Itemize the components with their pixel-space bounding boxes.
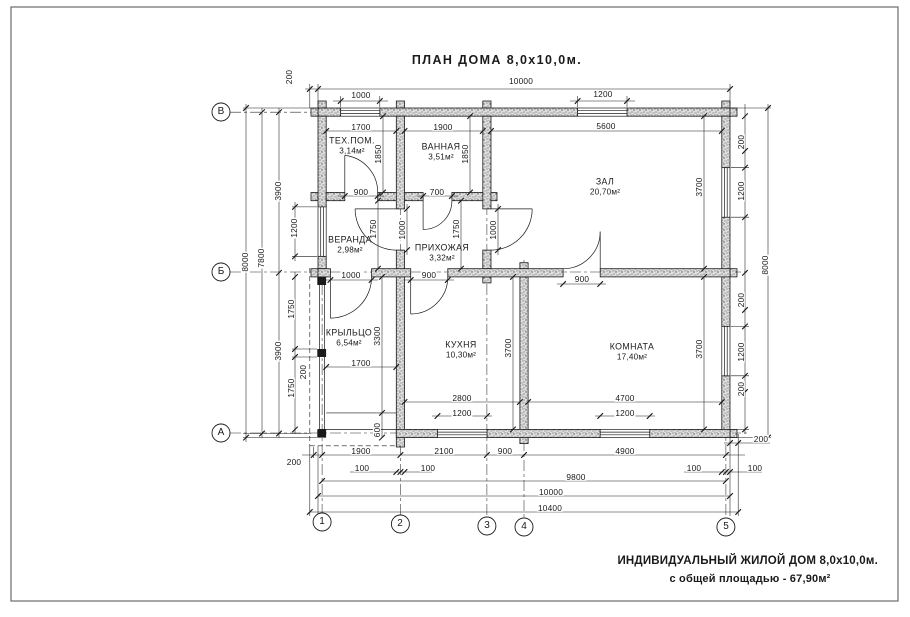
dimension-label: 700 [429,188,445,196]
dimension-label: 1900 [432,123,453,131]
dimension-label: 1700 [350,123,371,131]
dimension-label: 1850 [374,143,382,164]
dimension-label: 200 [286,458,302,466]
dimension-label: 1000 [340,271,361,279]
dimension-label: 1200 [737,341,745,362]
grid-row-label: А [218,428,225,438]
room-label: ЗАЛ20,70м² [590,176,620,197]
dimension-label: 100 [747,464,763,472]
dimension-label: 7800 [257,247,265,268]
dimension-label: 1750 [287,298,295,319]
dimension-label: 3700 [695,176,703,197]
dimension-label: 9800 [565,473,586,481]
room-area: 2,98м² [328,245,372,255]
room-name: КУХНЯ [445,339,476,349]
dimension-label: 1200 [614,409,635,417]
dimension-label: 900 [353,188,369,196]
room-name: КОМНАТА [610,341,654,351]
grid-col-label: 3 [484,521,490,531]
dimension-label: 1200 [290,217,298,238]
dimension-label: 3700 [695,338,703,359]
dimension-label: 900 [574,275,590,283]
dimension-label: 8000 [241,251,249,272]
dimension-label: 900 [421,271,437,279]
dimension-label: 8000 [761,254,769,275]
room-label: ВЕРАНДА2,98м² [328,234,372,255]
dimension-label: 1200 [592,90,613,98]
dimension-label: 1900 [350,447,371,455]
dimension-label: 100 [686,464,702,472]
dimension-label: 3900 [274,180,282,201]
dimension-label: 1000 [489,219,497,240]
room-label: КОМНАТА17,40м² [610,341,654,362]
dimension-label: 3700 [504,337,512,358]
dimension-label: 1200 [737,180,745,201]
dimension-label: 1700 [350,359,371,367]
dimension-label: 600 [373,422,381,438]
dimension-label: 1000 [398,219,406,240]
dimension-label: 100 [354,464,370,472]
dimension-label: 1200 [451,409,472,417]
dimension-label: 2100 [433,447,454,455]
dimension-label: 5600 [595,122,616,130]
room-label: ТЕХ.ПОМ.3,14м² [329,135,375,156]
grid-row-label: Б [218,267,225,277]
room-label: КУХНЯ10,30м² [445,339,476,360]
room-name: ЗАЛ [596,176,614,186]
room-label: ВАННАЯ3,51м² [422,141,461,162]
room-area: 20,70м² [590,187,620,197]
dimension-label: 1750 [287,377,295,398]
dimension-label: 10000 [508,77,534,85]
dimension-label: 4900 [614,447,635,455]
room-name: ВАННАЯ [422,141,461,151]
grid-col-label: 1 [319,517,325,527]
footer-area-note: с общей площадью - 67,90м² [669,573,830,585]
dimension-label: 200 [737,134,745,150]
dimension-label: 1000 [350,91,371,99]
grid-col-label: 4 [521,522,527,532]
dimension-label: 1850 [461,143,469,164]
dimension-label: 3300 [373,325,381,346]
dimension-label: 4700 [614,394,635,402]
room-name: КРЫЛЬЦО [326,327,372,337]
room-label: КРЫЛЬЦО6,54м² [326,327,372,348]
drawing-title: ПЛАН ДОМА 8,0x10,0м. [412,53,582,67]
room-name: ПРИХОЖАЯ [415,242,469,252]
dimension-label: 200 [753,435,769,443]
dimension-label: 200 [737,292,745,308]
dimension-label: 100 [420,464,436,472]
dimension-label: 900 [497,447,513,455]
room-area: 10,30м² [445,350,476,360]
dimension-label: 1750 [452,218,460,239]
room-area: 6,54м² [326,338,372,348]
room-label: ПРИХОЖАЯ3,32м² [415,242,469,263]
grid-col-label: 2 [397,519,403,529]
room-area: 3,32м² [415,253,469,263]
room-area: 3,51м² [422,152,461,162]
dimension-label: 3900 [274,340,282,361]
drawing-sheet: 2001000100001200800078003900120039001750… [0,0,910,617]
room-area: 3,14м² [329,146,375,156]
room-area: 17,40м² [610,352,654,362]
dimension-label: 10400 [537,504,563,512]
grid-col-label: 5 [723,522,729,532]
floor-plan-drawing [0,0,910,617]
dimension-label: 200 [737,381,745,397]
room-name: ТЕХ.ПОМ. [329,135,375,145]
dimension-label: 200 [299,364,307,380]
footer-title: ИНДИВИДУАЛЬНЫЙ ЖИЛОЙ ДОМ 8,0x10,0м. [617,555,878,567]
dimension-label: 2800 [451,394,472,402]
dimension-label: 200 [285,69,293,85]
room-name: ВЕРАНДА [328,234,372,244]
grid-row-label: В [218,107,225,117]
dimension-label: 10000 [538,488,564,496]
